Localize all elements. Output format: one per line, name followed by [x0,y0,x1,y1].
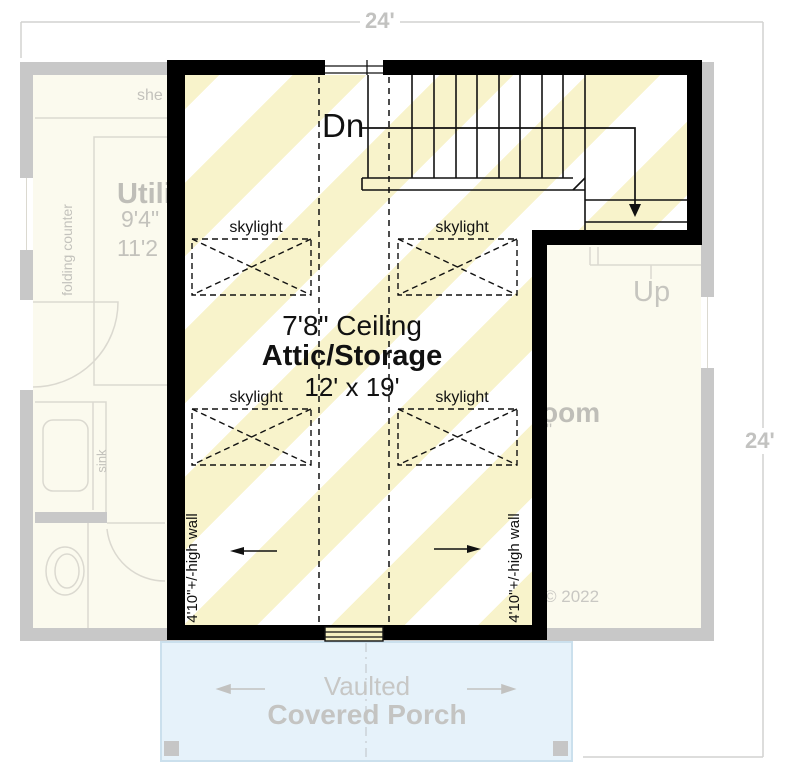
skylight-label-top-left: skylight [229,219,282,237]
porch-label-line1: Vaulted [167,671,567,702]
attic-top-window [325,60,383,75]
porch-label-line2: Covered Porch [167,699,567,731]
bathroom-partition-wall [35,512,107,523]
sink-label: sink [94,436,108,486]
folding-counter-label: folding counter [59,180,75,320]
right-wall-height-note: 4'10"+/-high wall [505,483,523,653]
top-dimension-label: 24' [360,8,400,34]
porch-post-left [164,741,179,756]
copyright-text: © 2022 [544,587,599,607]
ceiling-height-label: 7'8" Ceiling [202,310,502,341]
skylight-label-top-right: skylight [435,219,488,237]
utility-dimension-2: 11'2 [117,235,158,262]
skylight-label-bottom-left: skylight [229,389,282,407]
shelf-label: she [137,87,163,105]
right-dimension-label: 24' [740,428,780,454]
floor-plan-page: she folding counter Utili 9'4" 11'2 sink… [0,0,787,777]
utility-dimension-1: 9'4" [121,206,159,233]
left-wall-window-mullion [26,178,27,250]
porch-post-right [553,741,568,756]
skylight-label-bottom-right: skylight [435,389,488,407]
room-name-label: Attic/Storage [202,341,502,372]
down-label: Dn [322,107,364,145]
right-wall-window-mullion [707,297,708,368]
up-label: Up [633,276,670,309]
left-wall-door-opening [20,300,33,390]
left-wall-height-note: 4'10"+/-high wall [183,483,201,653]
